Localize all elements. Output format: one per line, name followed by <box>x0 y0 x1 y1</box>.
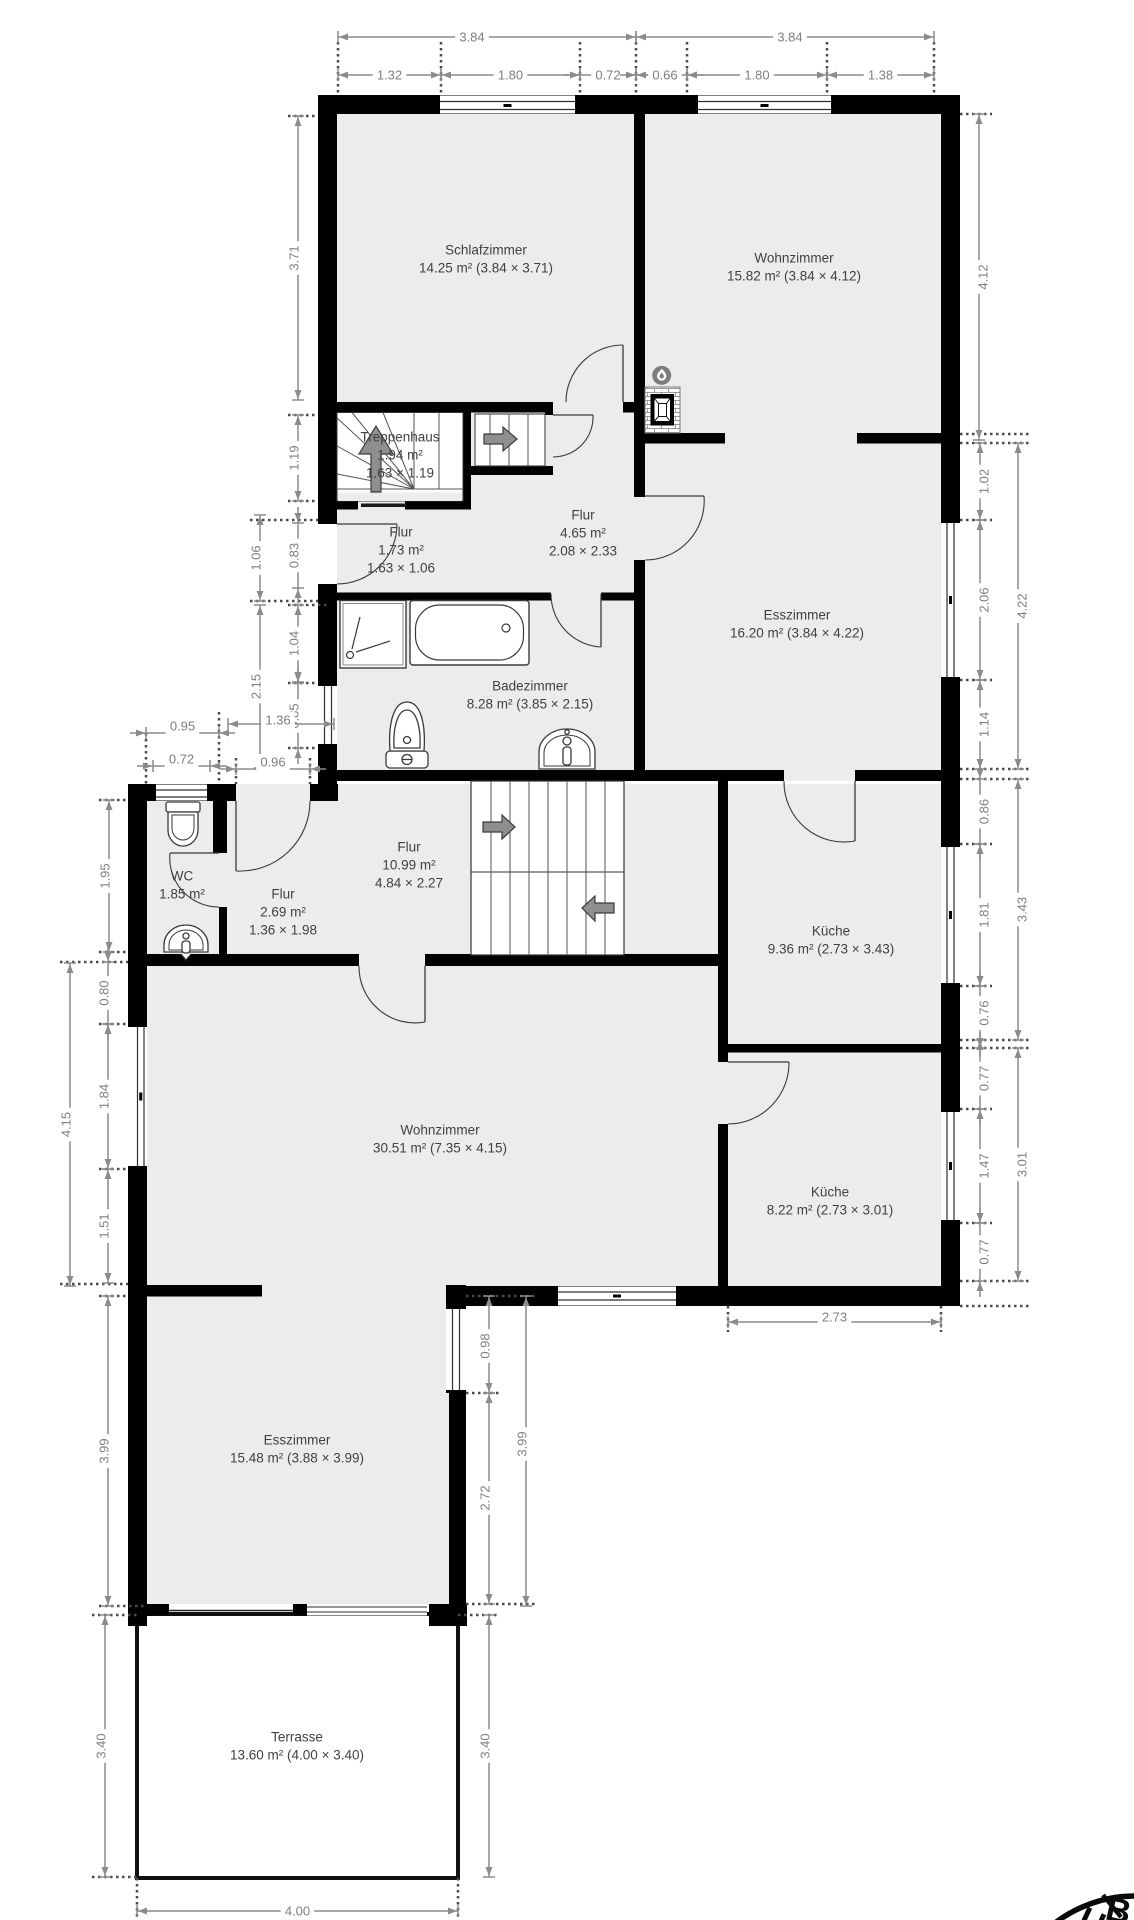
svg-text:4.12: 4.12 <box>976 264 991 289</box>
svg-text:1.63 × 1.19: 1.63 × 1.19 <box>366 466 434 481</box>
svg-text:4.22: 4.22 <box>1015 593 1030 618</box>
svg-text:3.01: 3.01 <box>1015 1152 1030 1177</box>
svg-text:1.85 m²: 1.85 m² <box>159 887 205 902</box>
svg-text:2.72: 2.72 <box>478 1485 493 1510</box>
svg-text:2.15: 2.15 <box>249 674 264 699</box>
svg-text:1.38: 1.38 <box>868 68 893 83</box>
svg-text:Wohnzimmer: Wohnzimmer <box>754 251 834 266</box>
svg-text:0.77: 0.77 <box>977 1066 992 1091</box>
svg-text:30.51 m² (7.35 × 4.15): 30.51 m² (7.35 × 4.15) <box>373 1141 507 1156</box>
svg-text:3.99: 3.99 <box>97 1438 112 1463</box>
svg-text:1.47: 1.47 <box>977 1153 992 1178</box>
svg-text:2.69 m²: 2.69 m² <box>260 905 306 920</box>
svg-text:4.84 × 2.27: 4.84 × 2.27 <box>375 876 443 891</box>
svg-text:13.60 m² (4.00 × 3.40): 13.60 m² (4.00 × 3.40) <box>230 1748 364 1763</box>
svg-text:1.81: 1.81 <box>977 902 992 927</box>
svg-text:1.63 × 1.06: 1.63 × 1.06 <box>367 561 435 576</box>
svg-text:Badezimmer: Badezimmer <box>492 679 568 694</box>
svg-text:10.99 m²: 10.99 m² <box>382 858 436 873</box>
svg-text:Küche: Küche <box>812 924 850 939</box>
svg-text:1.94 m²: 1.94 m² <box>377 448 423 463</box>
svg-text:Treppenhaus: Treppenhaus <box>360 430 439 445</box>
svg-text:Esszimmer: Esszimmer <box>264 1433 331 1448</box>
svg-text:1.36 × 1.98: 1.36 × 1.98 <box>249 923 317 938</box>
svg-text:0.72: 0.72 <box>595 68 620 83</box>
svg-text:Flur: Flur <box>389 525 413 540</box>
svg-text:Schlafzimmer: Schlafzimmer <box>445 243 527 258</box>
svg-text:0.86: 0.86 <box>977 799 992 824</box>
svg-text:0.72: 0.72 <box>169 752 194 767</box>
svg-text:Esszimmer: Esszimmer <box>764 608 831 623</box>
svg-text:1.19: 1.19 <box>287 445 302 470</box>
svg-text:0.83: 0.83 <box>287 543 302 568</box>
svg-text:14.25 m² (3.84 × 3.71): 14.25 m² (3.84 × 3.71) <box>419 261 553 276</box>
svg-text:1.04: 1.04 <box>287 631 302 656</box>
svg-text:Flur: Flur <box>571 508 595 523</box>
svg-text:0.80: 0.80 <box>97 980 112 1005</box>
svg-text:WC: WC <box>171 869 194 884</box>
svg-text:Küche: Küche <box>811 1185 849 1200</box>
svg-text:0.96: 0.96 <box>260 755 285 770</box>
svg-text:1.80: 1.80 <box>498 68 523 83</box>
svg-text:2.73: 2.73 <box>822 1310 847 1325</box>
svg-text:9.36 m² (2.73 × 3.43): 9.36 m² (2.73 × 3.43) <box>768 942 894 957</box>
svg-text:2.06: 2.06 <box>977 587 992 612</box>
svg-text:3.84: 3.84 <box>459 30 484 45</box>
svg-text:1.95: 1.95 <box>98 863 113 888</box>
svg-text:1.32: 1.32 <box>377 68 402 83</box>
svg-text:1.51: 1.51 <box>97 1213 112 1238</box>
svg-text:Flur: Flur <box>271 887 295 902</box>
svg-text:2.08 × 2.33: 2.08 × 2.33 <box>549 544 617 559</box>
svg-text:16.20 m² (3.84 × 4.22): 16.20 m² (3.84 × 4.22) <box>730 626 864 641</box>
svg-text:3.40: 3.40 <box>478 1733 493 1758</box>
svg-text:0.77: 0.77 <box>977 1239 992 1264</box>
svg-text:15.82 m² (3.84 × 4.12): 15.82 m² (3.84 × 4.12) <box>727 269 861 284</box>
svg-text:3.84: 3.84 <box>777 30 802 45</box>
svg-text:3.99: 3.99 <box>515 1431 530 1456</box>
svg-text:1.02: 1.02 <box>977 469 992 494</box>
svg-text:Flur: Flur <box>397 840 421 855</box>
svg-text:0.98: 0.98 <box>478 1333 493 1358</box>
svg-text:1.36: 1.36 <box>265 713 290 728</box>
svg-text:Wohnzimmer: Wohnzimmer <box>400 1123 480 1138</box>
svg-text:3.40: 3.40 <box>94 1733 109 1758</box>
svg-text:1.06: 1.06 <box>249 545 264 570</box>
svg-text:Terrasse: Terrasse <box>271 1730 323 1745</box>
svg-text:1.73 m²: 1.73 m² <box>378 543 424 558</box>
svg-text:1.14: 1.14 <box>977 712 992 737</box>
svg-text:3.43: 3.43 <box>1015 897 1030 922</box>
svg-text:4.65 m²: 4.65 m² <box>560 526 606 541</box>
svg-text:4.00: 4.00 <box>285 1904 310 1919</box>
svg-text:15.48 m² (3.88 × 3.99): 15.48 m² (3.88 × 3.99) <box>230 1451 364 1466</box>
svg-text:8.28 m² (3.85 × 2.15): 8.28 m² (3.85 × 2.15) <box>467 697 593 712</box>
svg-text:3.71: 3.71 <box>287 245 302 270</box>
svg-text:1.84: 1.84 <box>97 1084 112 1109</box>
svg-text:4.15: 4.15 <box>59 1112 74 1137</box>
svg-text:0.95: 0.95 <box>170 719 195 734</box>
svg-text:0.76: 0.76 <box>977 1000 992 1025</box>
svg-text:1.80: 1.80 <box>744 68 769 83</box>
svg-text:8.22 m² (2.73 × 3.01): 8.22 m² (2.73 × 3.01) <box>767 1203 893 1218</box>
svg-text:0.66: 0.66 <box>652 68 677 83</box>
